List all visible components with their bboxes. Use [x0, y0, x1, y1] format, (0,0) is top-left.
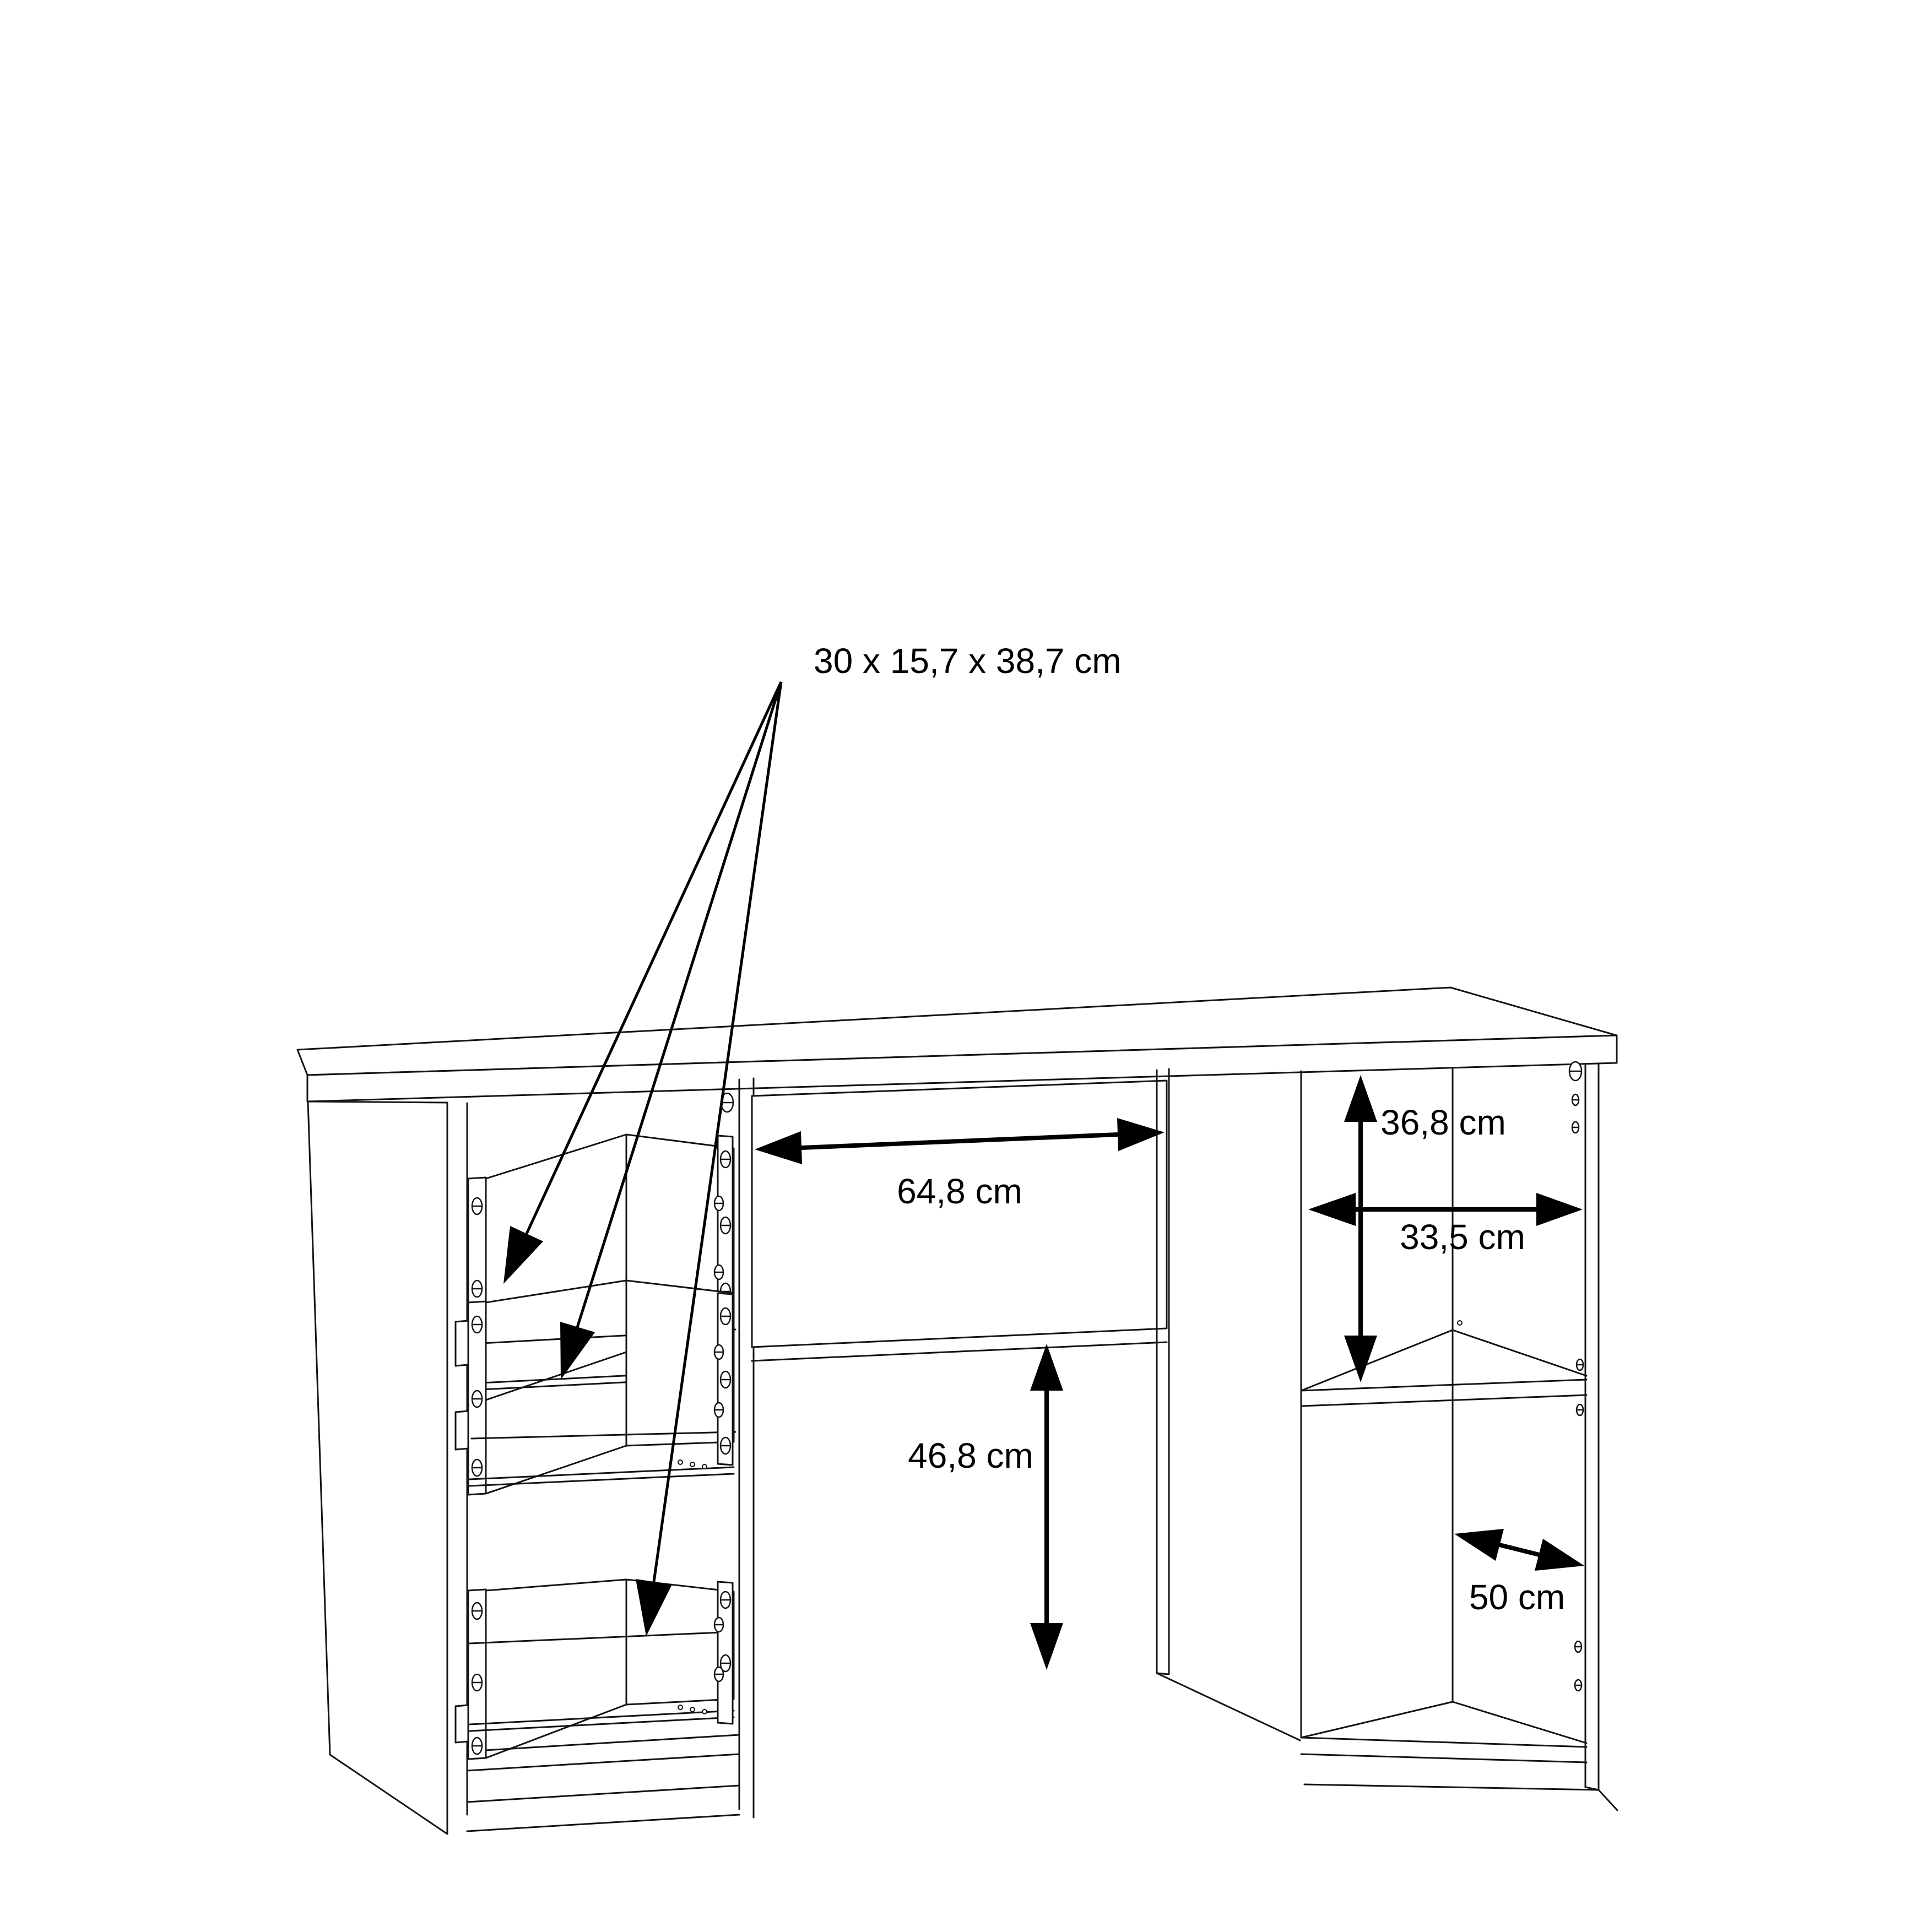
- middle-drawer-width-label: 64,8 cm: [897, 1171, 1022, 1211]
- desk-line-drawing: 30 x 15,7 x 38,7 cm 64,8 cm 36,8 cm 33,5…: [0, 0, 1928, 1932]
- dim-compartment-depth: 50 cm: [1454, 1529, 1584, 1617]
- compartment-width-label: 33,5 cm: [1400, 1217, 1525, 1257]
- drawer-box-3: [456, 1580, 734, 1759]
- desk-top: [297, 987, 1617, 1101]
- middle-drawer-front: [752, 1081, 1167, 1361]
- compartment-depth-label: 50 cm: [1469, 1577, 1565, 1617]
- drawer-box-2: [456, 1280, 735, 1495]
- pinholes: [678, 1460, 707, 1469]
- dim-knee-space-height: 46,8 cm: [908, 1344, 1063, 1670]
- drawer-size-label: 30 x 15,7 x 38,7 cm: [814, 641, 1122, 681]
- upper-compartment-height-label: 36,8 cm: [1380, 1103, 1506, 1142]
- dim-compartment-width: 33,5 cm: [1308, 1193, 1583, 1257]
- diagram-canvas: 30 x 15,7 x 38,7 cm 64,8 cm 36,8 cm 33,5…: [0, 0, 1928, 1932]
- knee-space-height-label: 46,8 cm: [908, 1436, 1033, 1475]
- right-pedestal: [1301, 1062, 1617, 1810]
- knee-space-wall: [1157, 1069, 1300, 1740]
- shelf: [1301, 1330, 1586, 1406]
- bottom-panel: [1301, 1702, 1617, 1810]
